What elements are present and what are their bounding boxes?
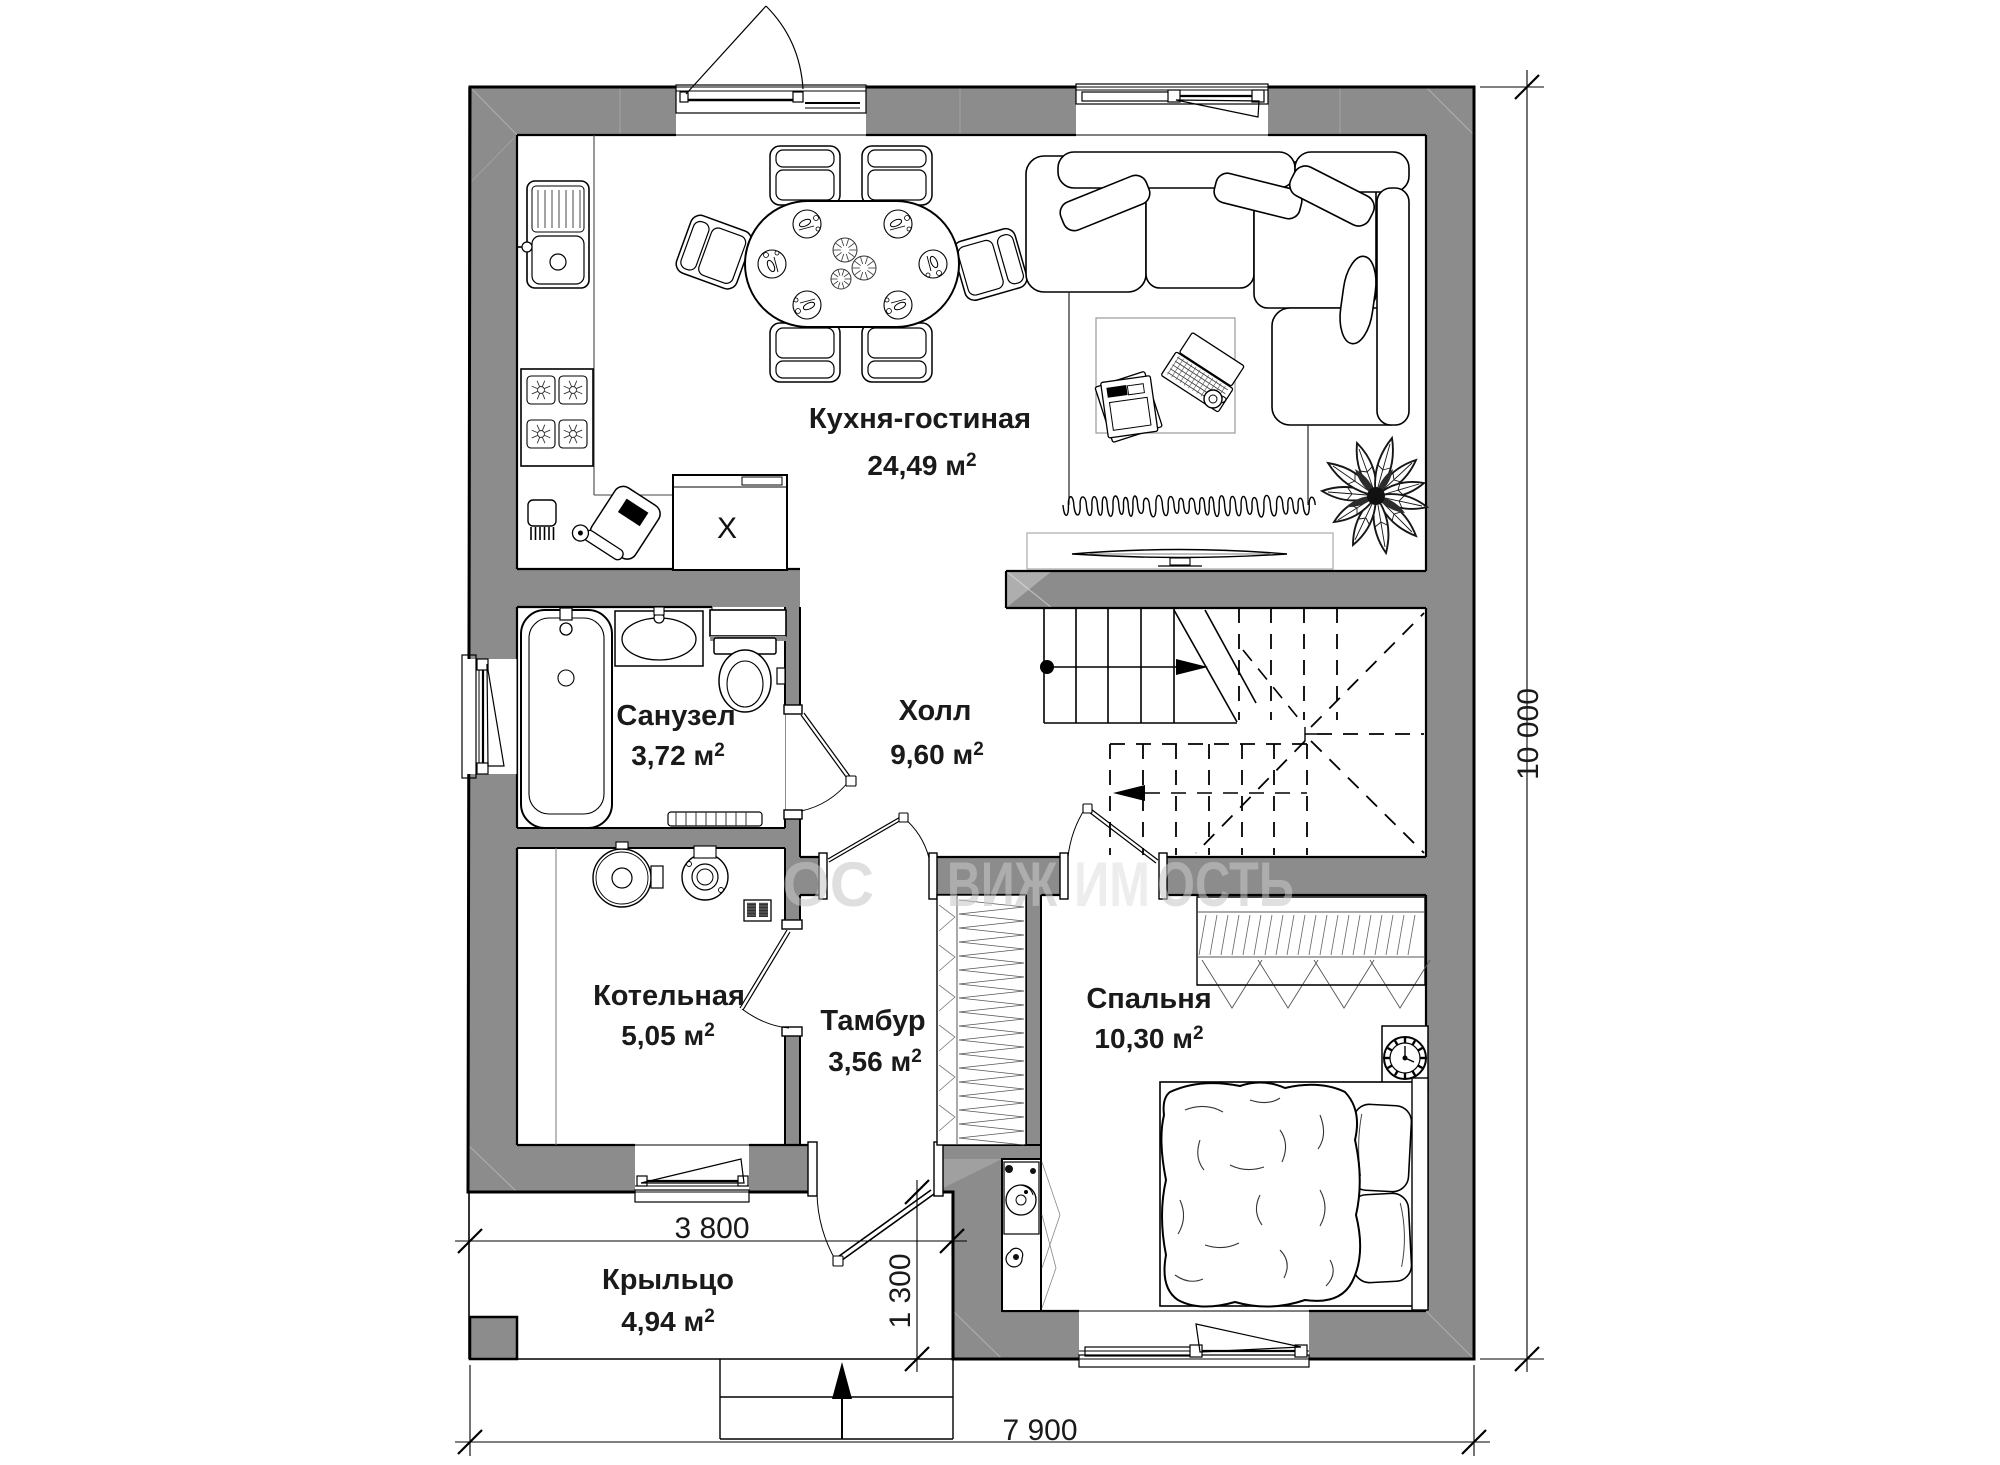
svg-text:3 800: 3 800	[674, 1212, 749, 1245]
svg-text:10 000: 10 000	[1512, 688, 1545, 780]
svg-text:7 900: 7 900	[1002, 1414, 1077, 1447]
svg-text:Кухня-гостиная: Кухня-гостиная	[809, 403, 1031, 435]
svg-text:24,49 м2: 24,49 м2	[867, 450, 976, 481]
svg-text:3,56 м2: 3,56 м2	[828, 1046, 922, 1077]
svg-text:ВИЖ: ВИЖ	[947, 850, 1058, 920]
svg-text:Холл: Холл	[899, 695, 972, 727]
svg-text:1 300: 1 300	[884, 1253, 917, 1328]
svg-text:Тамбур: Тамбур	[820, 1005, 925, 1037]
svg-text:ИМ: ИМ	[1074, 850, 1150, 920]
svg-text:4,94 м2: 4,94 м2	[621, 1306, 715, 1337]
svg-text:Котельная: Котельная	[593, 980, 745, 1012]
svg-text:3,72 м2: 3,72 м2	[631, 740, 725, 771]
svg-text:9,60 м2: 9,60 м2	[890, 739, 984, 770]
svg-text:Спальня: Спальня	[1086, 983, 1211, 1015]
svg-text:10,30 м2: 10,30 м2	[1094, 1023, 1203, 1054]
svg-text:X: X	[717, 512, 737, 545]
svg-text:Санузел: Санузел	[616, 700, 735, 732]
svg-text:5,05 м2: 5,05 м2	[621, 1020, 715, 1051]
svg-text:ОСТЬ: ОСТЬ	[1157, 850, 1294, 920]
svg-text:ОС: ОС	[782, 850, 874, 920]
svg-text:Крыльцо: Крыльцо	[602, 1264, 734, 1296]
